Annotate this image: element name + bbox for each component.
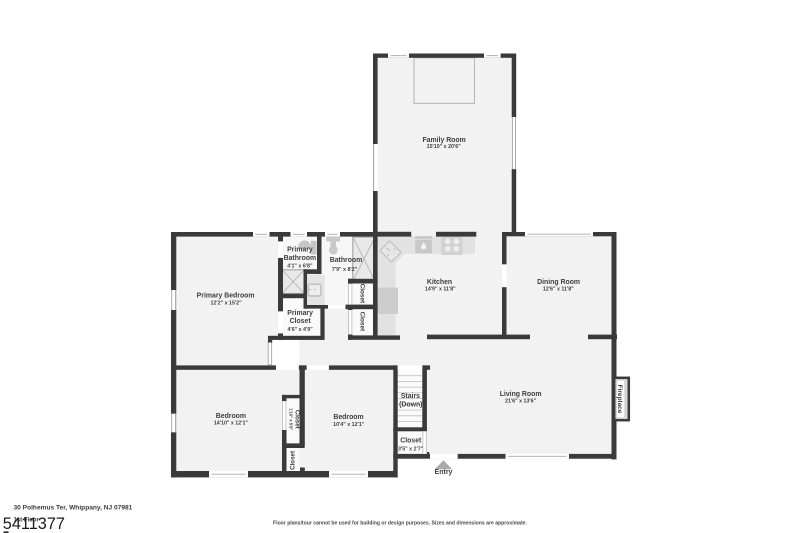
svg-text:21'6" x 13'6": 21'6" x 13'6"	[505, 398, 537, 404]
svg-text:Closet: Closet	[400, 438, 422, 445]
svg-text:4'6" x 4'9": 4'6" x 4'9"	[287, 327, 313, 333]
svg-text:Closet: Closet	[358, 284, 365, 304]
svg-text:Primary Bedroom: Primary Bedroom	[197, 293, 255, 300]
svg-text:Entry: Entry	[435, 469, 453, 476]
svg-text:Living Room: Living Room	[500, 391, 542, 398]
svg-text:Bedroom: Bedroom	[333, 414, 363, 421]
svg-text:Kitchen: Kitchen	[427, 279, 452, 286]
svg-text:Primary: Primary	[287, 247, 313, 254]
svg-text:4'1" x 6'8": 4'1" x 6'8"	[287, 264, 313, 270]
svg-text:14'9" x 11'8": 14'9" x 11'8"	[425, 286, 456, 292]
svg-text:Dining Room: Dining Room	[537, 279, 580, 286]
svg-text:Bedroom: Bedroom	[216, 413, 246, 420]
svg-text:Family Room: Family Room	[422, 137, 465, 144]
svg-text:Primary: Primary	[287, 310, 313, 317]
svg-text:Closet: Closet	[290, 318, 312, 325]
svg-text:Fireplace: Fireplace	[616, 385, 623, 414]
svg-text:30 Polhemus Ter, Whippany, NJ: 30 Polhemus Ter, Whippany, NJ 07981	[14, 504, 133, 511]
svg-text:Closet: Closet	[290, 451, 297, 470]
svg-text:15'10" x 20'6": 15'10" x 20'6"	[427, 144, 462, 150]
svg-text:12'6" x 11'8": 12'6" x 11'8"	[543, 286, 574, 292]
svg-text:Bathroom: Bathroom	[284, 255, 317, 262]
svg-text:3'5" x 2'7": 3'5" x 2'7"	[398, 447, 424, 453]
svg-text:Floor plans/tour cannot be use: Floor plans/tour cannot be used for buil…	[273, 521, 527, 527]
svg-text:Closet: Closet	[358, 312, 365, 332]
svg-text:12'2" x 15'2": 12'2" x 15'2"	[211, 301, 243, 307]
svg-text:7'9" x 8'2": 7'9" x 8'2"	[332, 267, 358, 273]
svg-text:(Down): (Down)	[399, 401, 422, 408]
svg-text:Stairs: Stairs	[401, 393, 420, 400]
svg-text:Closet: Closet	[293, 410, 300, 429]
svg-text:Bathroom: Bathroom	[330, 257, 363, 264]
svg-text:10'4" x 12'1": 10'4" x 12'1"	[333, 422, 365, 428]
svg-text:5411377: 5411377	[3, 515, 65, 533]
svg-text:1'10" x 5'6": 1'10" x 5'6"	[288, 408, 293, 430]
svg-text:14'10" x 12'1": 14'10" x 12'1"	[214, 420, 249, 426]
